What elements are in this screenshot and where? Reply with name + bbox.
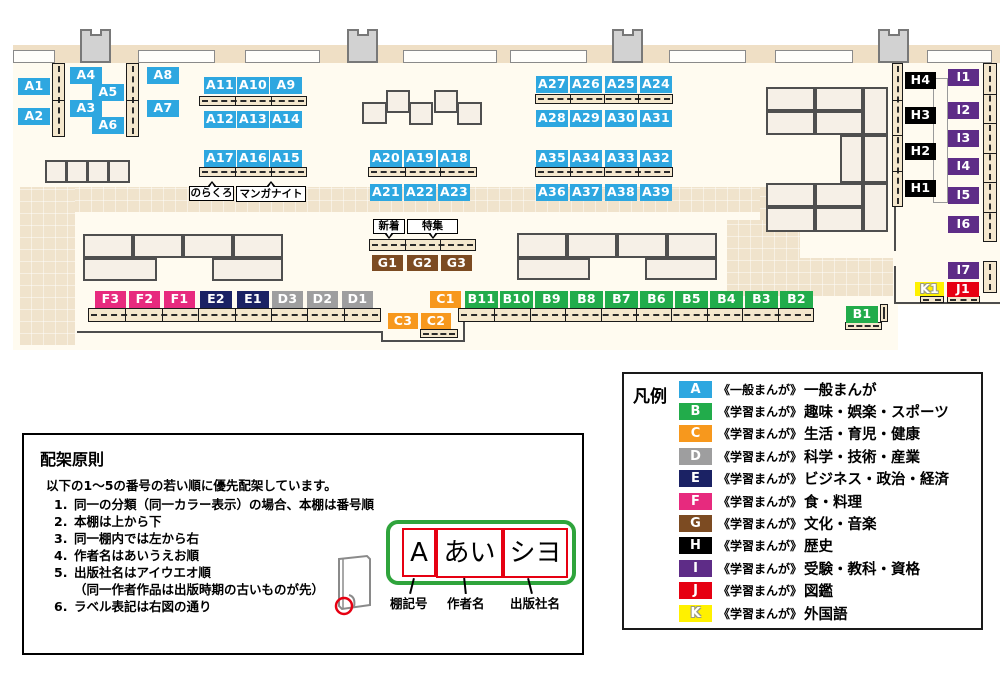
legend-row-D: D《学習まんが》科学・技術・産業: [679, 445, 979, 467]
principle-item-1: 1.同一の分類（同一カラー表示）の場合、本棚は番号順: [54, 496, 374, 513]
reading-table: [66, 160, 88, 183]
principles-list: 1.同一の分類（同一カラー表示）の場合、本棚は番号順2.本棚は上から下3.同一棚…: [54, 496, 374, 615]
bookshelf-horizontal: [920, 296, 944, 303]
bookshelf-horizontal: [199, 167, 307, 177]
window: [403, 50, 497, 63]
map-note: のらくろ: [189, 186, 234, 201]
bookshelf-horizontal: [845, 322, 882, 330]
spine-publisher-box: シヨ: [503, 528, 568, 578]
reading-table: [133, 234, 183, 258]
shelf-label-C3: C3: [388, 313, 418, 329]
legend-category-label: 趣味・娯楽・スポーツ: [804, 401, 949, 422]
shelf-label-A26: A26: [570, 76, 602, 93]
legend-row-K: K《学習まんが》外国語: [679, 602, 979, 624]
shelf-label-A1: A1: [18, 78, 50, 95]
legend-category-label: 受験・教科・資格: [804, 558, 920, 579]
bookshelf-vertical: [892, 63, 903, 207]
reading-table: [863, 87, 888, 135]
reading-table: [667, 233, 717, 258]
wall: [894, 266, 896, 304]
legend-category-label: 図鑑: [804, 580, 833, 601]
shelf-label-A2: A2: [18, 108, 50, 125]
shelf-label-B5: B5: [675, 291, 708, 308]
reading-table: [863, 135, 888, 183]
reading-table: [212, 258, 283, 281]
shelf-label-A23: A23: [438, 184, 470, 201]
shelf-label-A36: A36: [536, 184, 568, 201]
shelf-label-G2: G2: [407, 255, 438, 271]
shelf-label-A35: A35: [536, 150, 568, 167]
principle-item-5-cont: （同一作者作品は出版時期の古いものが先）: [54, 581, 374, 598]
window: [927, 50, 992, 63]
pillar: [612, 29, 643, 63]
shelf-label-A30: A30: [605, 110, 637, 127]
legend-series: 《学習まんが》: [718, 403, 802, 420]
pillar: [878, 29, 909, 63]
shelf-label-A4: A4: [70, 67, 102, 84]
shelf-label-A39: A39: [640, 184, 672, 201]
shelf-label-K1: K1: [915, 282, 944, 296]
map-note: マンガナイト: [236, 186, 306, 202]
shelf-label-A20: A20: [370, 150, 402, 167]
reading-table: [83, 258, 157, 281]
shelf-label-J1: J1: [947, 282, 979, 297]
shelf-label-H2: H2: [905, 143, 936, 160]
shelf-label-A32: A32: [640, 150, 672, 167]
bookshelf-horizontal: [535, 94, 673, 104]
principle-item-3: 3.同一棚内では左から右: [54, 530, 374, 547]
shelf-label-B10: B10: [500, 291, 533, 308]
reading-table: [517, 233, 567, 258]
principles-intro: 以下の1～5の番号の若い順に優先配架しています。: [46, 475, 337, 494]
reading-table: [815, 207, 863, 232]
legend-category-label: 一般まんが: [804, 379, 877, 400]
legend-row-I: I《学習まんが》受験・教科・資格: [679, 557, 979, 579]
shelf-label-A31: A31: [640, 110, 672, 127]
shelf-label-A8: A8: [147, 67, 179, 84]
spine-author-box: あい: [436, 528, 503, 578]
shelf-label-B6: B6: [640, 291, 673, 308]
shelf-label-A16: A16: [237, 150, 269, 167]
shelf-label-F3: F3: [95, 291, 126, 308]
map-note: 新着: [373, 219, 405, 234]
floor-mask: [898, 305, 1000, 351]
shelf-label-F1: F1: [164, 291, 195, 308]
shelf-label-A37: A37: [570, 184, 602, 201]
bookshelf-vertical: [52, 63, 65, 137]
shelf-label-B3: B3: [745, 291, 778, 308]
reading-table: [617, 233, 667, 258]
bookshelf-vertical: [880, 304, 888, 322]
reading-table: [645, 258, 717, 280]
legend-panel: 凡例 A《一般まんが》一般まんがB《学習まんが》趣味・娯楽・スポーツC《学習まん…: [622, 372, 983, 630]
bookshelf-horizontal: [368, 167, 477, 177]
shelf-label-I5: I5: [948, 187, 979, 204]
shelf-label-A24: A24: [640, 76, 672, 93]
shelf-label-I1: I1: [948, 69, 979, 86]
shelf-label-G3: G3: [441, 255, 472, 271]
legend-category-label: 食・料理: [804, 491, 862, 512]
bookshelf-horizontal: [369, 239, 476, 251]
bookshelf-vertical: [983, 261, 997, 293]
reading-table: [386, 90, 410, 113]
legend-chip-G: G: [679, 515, 712, 532]
window: [775, 50, 853, 63]
shelf-label-A10: A10: [237, 77, 269, 94]
shelf-label-A9: A9: [270, 77, 302, 94]
reading-table: [840, 135, 863, 183]
shelf-label-A17: A17: [204, 150, 236, 167]
map-note: 特集: [407, 219, 458, 234]
principle-item-6: 6.ラベル表記は右図の通り: [54, 598, 374, 615]
shelf-label-A28: A28: [536, 110, 568, 127]
legend-row-H: H《学習まんが》歴史: [679, 535, 979, 557]
legend-chip-E: E: [679, 470, 712, 487]
principles-title: 配架原則: [40, 446, 104, 470]
wall: [77, 331, 383, 333]
reading-table: [45, 160, 67, 183]
library-floor-map-page: A1A2A4A5A3A6A8A7A11A10A9A12A13A14A17A16A…: [0, 0, 1000, 700]
shelf-label-B9: B9: [535, 291, 568, 308]
legend-row-E: E《学習まんが》ビジネス・政治・経済: [679, 468, 979, 490]
bookshelf-horizontal: [88, 308, 381, 322]
legend-chip-I: I: [679, 560, 712, 577]
legend-title: 凡例: [633, 382, 667, 407]
legend-row-A: A《一般まんが》一般まんが: [679, 378, 979, 400]
shelf-label-E1: E1: [237, 291, 269, 308]
legend-series: 《学習まんが》: [718, 425, 802, 442]
reading-table: [567, 233, 617, 258]
shelf-label-A29: A29: [570, 110, 602, 127]
shelf-label-I2: I2: [948, 102, 979, 119]
shelf-label-A12: A12: [204, 111, 236, 128]
legend-series: 《学習まんが》: [718, 470, 802, 487]
principle-item-4: 4.作者名はあいうえお順: [54, 547, 374, 564]
bookshelf-horizontal: [458, 308, 814, 322]
shelf-label-I4: I4: [948, 158, 979, 175]
window: [510, 50, 587, 63]
legend-series: 《学習まんが》: [718, 605, 802, 622]
legend-chip-H: H: [679, 537, 712, 554]
reading-table: [517, 258, 590, 280]
reading-table: [362, 102, 387, 124]
legend-series: 《学習まんが》: [718, 493, 802, 510]
shelf-label-H4: H4: [905, 72, 936, 89]
wall: [381, 340, 465, 342]
shelf-label-I3: I3: [948, 130, 979, 147]
legend-series: 《学習まんが》: [718, 582, 802, 599]
legend-category-label: 生活・育児・健康: [804, 423, 920, 444]
shelf-label-C2: C2: [421, 313, 451, 329]
shelf-label-A27: A27: [536, 76, 568, 93]
shelf-label-A19: A19: [404, 150, 436, 167]
caption-author: 作者名: [447, 593, 485, 612]
reading-table: [766, 183, 815, 207]
reading-table: [815, 111, 863, 135]
bookshelf-vertical: [983, 63, 997, 242]
shelf-label-D2: D2: [307, 291, 338, 308]
reading-table: [766, 111, 815, 135]
shelf-label-A25: A25: [605, 76, 637, 93]
shelf-label-D1: D1: [342, 291, 373, 308]
window: [13, 50, 55, 63]
legend-series: 《学習まんが》: [718, 537, 802, 554]
legend-category-label: 文化・音楽: [804, 513, 877, 534]
legend-series: 《一般まんが》: [718, 381, 802, 398]
legend-chip-B: B: [679, 403, 712, 420]
window: [245, 50, 320, 63]
bookshelf-vertical: [126, 63, 139, 137]
principle-item-5: 5.出版社名はアイウエオ順: [54, 564, 374, 581]
reading-table: [434, 90, 458, 113]
legend-chip-F: F: [679, 493, 712, 510]
reading-table: [83, 234, 133, 258]
shelf-label-B7: B7: [605, 291, 638, 308]
legend-row-J: J《学習まんが》図鑑: [679, 580, 979, 602]
shelf-label-A5: A5: [92, 84, 124, 101]
caption-publisher: 出版社名: [510, 593, 560, 612]
legend-series: 《学習まんが》: [718, 515, 802, 532]
shelf-label-A21: A21: [370, 184, 402, 201]
legend-chip-D: D: [679, 448, 712, 465]
shelf-label-A15: A15: [270, 150, 302, 167]
shelf-label-A3: A3: [70, 100, 102, 117]
shelf-label-A33: A33: [605, 150, 637, 167]
legend-row-C: C《学習まんが》生活・育児・健康: [679, 423, 979, 445]
shelf-label-F2: F2: [129, 291, 160, 308]
legend-row-F: F《学習まんが》食・料理: [679, 490, 979, 512]
window: [138, 50, 215, 63]
shelf-label-B8: B8: [570, 291, 603, 308]
legend-category-label: 外国語: [804, 603, 848, 624]
reading-table: [87, 160, 109, 183]
shelf-label-E2: E2: [200, 291, 232, 308]
legend-category-label: 歴史: [804, 535, 833, 556]
reading-table: [108, 160, 130, 183]
shelf-label-A22: A22: [404, 184, 436, 201]
legend-rows: A《一般まんが》一般まんがB《学習まんが》趣味・娯楽・スポーツC《学習まんが》生…: [679, 378, 979, 624]
shelf-label-I6: I6: [948, 216, 979, 233]
shelf-label-B2: B2: [780, 291, 813, 308]
reading-table: [766, 207, 815, 232]
reading-table: [815, 87, 863, 111]
legend-chip-C: C: [679, 425, 712, 442]
window: [669, 50, 746, 63]
shelf-label-A6: A6: [92, 117, 124, 134]
caption-shelf-code: 棚記号: [390, 593, 428, 612]
pillar: [80, 29, 111, 63]
reading-table: [409, 102, 433, 125]
shelf-label-A13: A13: [237, 111, 269, 128]
bookshelf-horizontal: [420, 329, 458, 338]
shelving-principles-panel: 配架原則 以下の1～5の番号の若い順に優先配架しています。 1.同一の分類（同一…: [22, 433, 584, 655]
shelf-label-A14: A14: [270, 111, 302, 128]
reading-table: [233, 234, 283, 258]
reading-table: [183, 234, 233, 258]
reading-table: [457, 102, 482, 125]
legend-chip-A: A: [679, 381, 712, 398]
shelf-label-C1: C1: [430, 291, 461, 308]
shelf-label-B4: B4: [710, 291, 743, 308]
shelf-label-B1: B1: [846, 306, 878, 323]
shelf-label-H1: H1: [905, 180, 936, 197]
legend-category-label: 科学・技術・産業: [804, 446, 920, 467]
legend-row-B: B《学習まんが》趣味・娯楽・スポーツ: [679, 400, 979, 422]
shelf-label-I7: I7: [948, 262, 979, 279]
reading-table: [815, 183, 863, 207]
principle-item-2: 2.本棚は上から下: [54, 513, 374, 530]
bookshelf-horizontal: [535, 167, 673, 177]
shelf-label-A11: A11: [204, 77, 236, 94]
legend-series: 《学習まんが》: [718, 560, 802, 577]
legend-category-label: ビジネス・政治・経済: [804, 468, 949, 489]
book-icon: [327, 551, 381, 621]
legend-series: 《学習まんが》: [718, 448, 802, 465]
reading-table: [863, 183, 888, 232]
legend-chip-J: J: [679, 582, 712, 599]
bookshelf-horizontal: [947, 296, 980, 303]
spine-shelf-code-box: A: [402, 528, 436, 577]
shelf-label-H3: H3: [905, 107, 936, 124]
legend-row-G: G《学習まんが》文化・音楽: [679, 512, 979, 534]
shelf-label-A18: A18: [438, 150, 470, 167]
shelf-label-G1: G1: [372, 255, 403, 271]
shelf-label-D3: D3: [272, 291, 303, 308]
bookshelf-horizontal: [199, 96, 307, 106]
shelf-label-A34: A34: [570, 150, 602, 167]
shelf-label-A7: A7: [147, 100, 179, 117]
shelf-label-B11: B11: [465, 291, 498, 308]
spine-label-diagram: A あい シヨ: [386, 520, 576, 585]
legend-chip-K: K: [679, 605, 712, 622]
reading-table: [766, 87, 815, 111]
pillar: [347, 29, 378, 63]
shelf-label-A38: A38: [605, 184, 637, 201]
walkway-carpet: [20, 187, 75, 345]
